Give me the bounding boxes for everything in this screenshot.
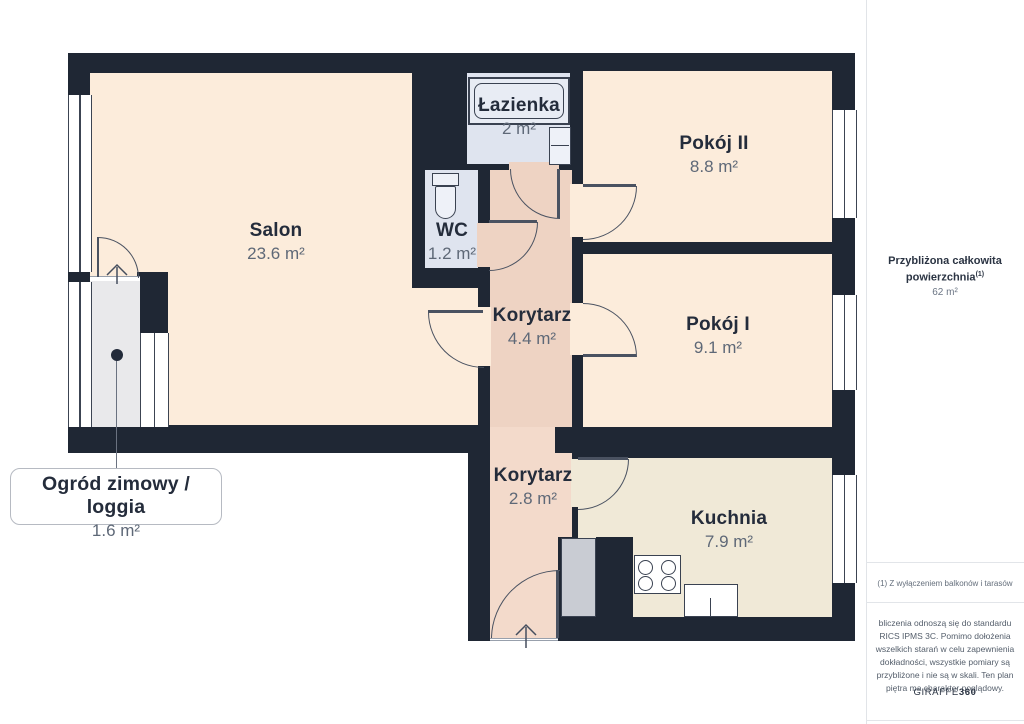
wall <box>596 537 633 617</box>
window <box>832 295 857 390</box>
toilet-tank <box>432 173 459 186</box>
total-area-footnote-marker: (1) <box>976 271 985 278</box>
total-area-value: 62 m² <box>866 287 1024 298</box>
fridge <box>561 538 596 617</box>
floor-plan-page: Salon 23.6 m² Łazienka 2 m² WC 1.2 m² Po… <box>0 0 1024 724</box>
room-label-korytarz-1: Korytarz 4.4 m² <box>493 304 572 350</box>
callout-leader-line <box>116 358 117 468</box>
room-name: Salon <box>247 219 305 242</box>
total-area-title: Przybliżona całkowita powierzchnia(1) <box>866 254 1024 285</box>
room-area: 9.1 m² <box>686 336 750 359</box>
room-name: Korytarz <box>494 464 573 487</box>
sidebar-divider <box>866 562 1024 563</box>
callout-leader-dot <box>111 349 123 361</box>
room-name: Kuchnia <box>691 507 767 530</box>
door-opening <box>570 303 584 355</box>
callout-name: Ogród zimowy / loggia <box>11 473 221 519</box>
stove-burner <box>661 576 676 591</box>
disclaimer-text: bliczenia odnoszą się do standardu RICS … <box>866 617 1024 695</box>
room-label-kuchnia: Kuchnia 7.9 m² <box>691 507 767 553</box>
corridor-passage <box>490 427 555 453</box>
window <box>68 282 92 427</box>
brand-logo: GIRAFFE360 <box>866 687 1024 698</box>
brand-number: 360 <box>959 687 977 698</box>
window <box>832 475 857 583</box>
stove-burner <box>661 560 676 575</box>
stove-burner <box>638 576 653 591</box>
room-label-salon: Salon 23.6 m² <box>247 219 305 265</box>
wall <box>412 73 467 170</box>
room-label-pokoj-2: Pokój II 8.8 m² <box>679 132 748 178</box>
window-mullion <box>154 333 155 427</box>
wall <box>412 268 490 288</box>
entrance-arrow-icon <box>104 263 130 285</box>
sidebar-divider <box>866 602 1024 603</box>
room-name: WC <box>428 219 476 242</box>
window-mullion <box>844 110 845 218</box>
toilet-bowl <box>435 186 456 219</box>
loggia-callout: Ogród zimowy / loggia 1.6 m² <box>10 468 222 525</box>
disclaimer-paragraph: bliczenia odnoszą się do standardu RICS … <box>874 617 1016 695</box>
room-area: 8.8 m² <box>679 155 748 178</box>
callout-area: 1.6 m² <box>11 519 221 542</box>
room-area: 2 m² <box>478 117 560 140</box>
total-area-label: Przybliżona całkowita powierzchnia <box>888 255 1002 284</box>
room-label-korytarz-2: Korytarz 2.8 m² <box>494 464 573 510</box>
room-label-pokoj-1: Pokój I 9.1 m² <box>686 313 750 359</box>
wall <box>137 272 168 333</box>
entrance-arrow-icon <box>514 623 538 649</box>
room-area: 7.9 m² <box>691 530 767 553</box>
window-mullion <box>79 95 80 272</box>
door-opening <box>570 184 584 237</box>
brand-name: GIRAFFE <box>913 687 958 698</box>
window <box>832 110 857 218</box>
room-area: 2.8 m² <box>494 487 573 510</box>
room-name: Pokój I <box>686 313 750 336</box>
info-sidebar <box>866 0 1024 724</box>
window-mullion <box>79 282 80 427</box>
room-name: Łazienka <box>478 94 560 117</box>
room-name: Pokój II <box>679 132 748 155</box>
window <box>68 95 92 272</box>
room-area: 1.2 m² <box>428 242 476 265</box>
window <box>140 333 169 427</box>
room-label-lazienka: Łazienka 2 m² <box>478 94 560 140</box>
wall <box>412 170 425 268</box>
kitchen-sink-faucet <box>710 598 711 617</box>
room-area: 23.6 m² <box>247 242 305 265</box>
room-label-wc: WC 1.2 m² <box>428 219 476 265</box>
footnote-text: (1) Z wyłączeniem balkonów i tarasów <box>866 579 1024 588</box>
room-name: Korytarz <box>493 304 572 327</box>
window-mullion <box>844 475 845 583</box>
stove-burner <box>638 560 653 575</box>
bathroom-sink-line <box>551 145 569 146</box>
sidebar-divider <box>866 720 1024 721</box>
room-area: 4.4 m² <box>493 327 572 350</box>
window-mullion <box>844 295 845 390</box>
wall <box>68 427 490 453</box>
